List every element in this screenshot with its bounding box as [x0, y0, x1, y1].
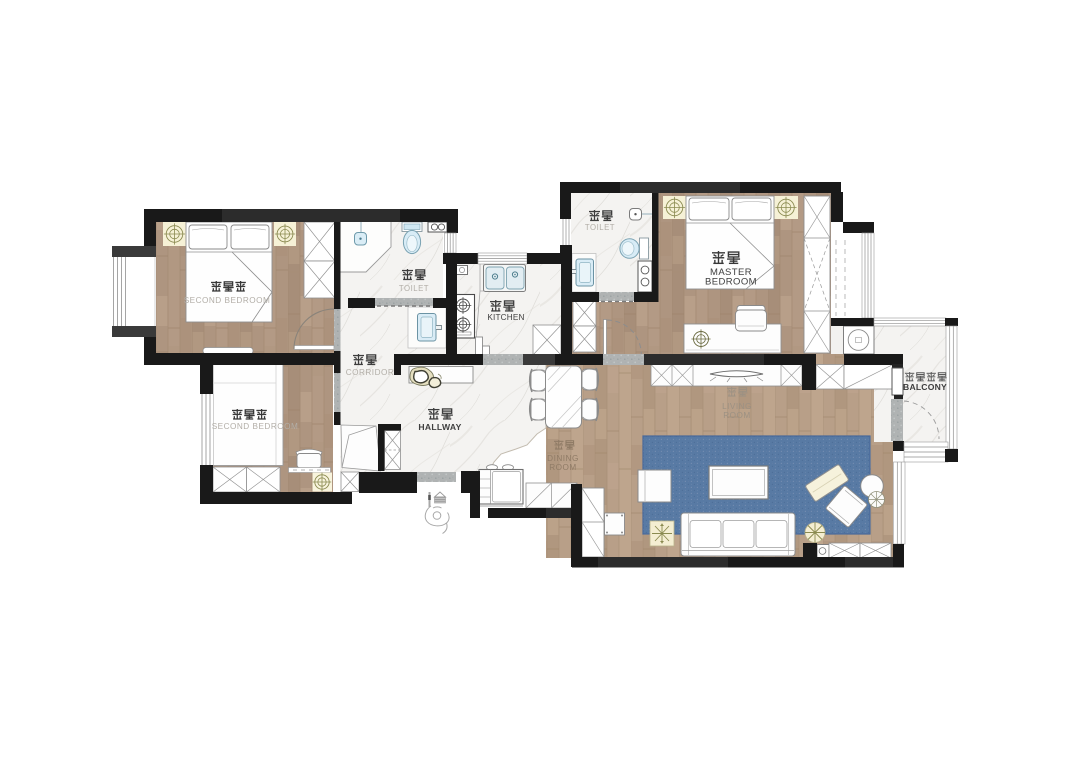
svg-text:DINING: DINING [547, 454, 579, 463]
svg-text:SECOND BEDROOM: SECOND BEDROOM [212, 422, 299, 431]
svg-text:BALCONY: BALCONY [903, 382, 947, 392]
svg-text:HALLWAY: HALLWAY [418, 422, 461, 432]
svg-text:CORRIDOR: CORRIDOR [346, 368, 395, 377]
svg-text:TOILET: TOILET [399, 284, 429, 293]
svg-text:SECOND BEDROOM: SECOND BEDROOM [184, 296, 271, 305]
svg-text:BEDROOM: BEDROOM [705, 277, 757, 288]
svg-text:TOILET: TOILET [585, 223, 615, 232]
svg-text:LIVING: LIVING [722, 402, 752, 411]
svg-text:ROOM: ROOM [549, 463, 576, 472]
svg-text:KITCHEN: KITCHEN [487, 313, 524, 322]
svg-text:ROOM: ROOM [723, 411, 750, 420]
